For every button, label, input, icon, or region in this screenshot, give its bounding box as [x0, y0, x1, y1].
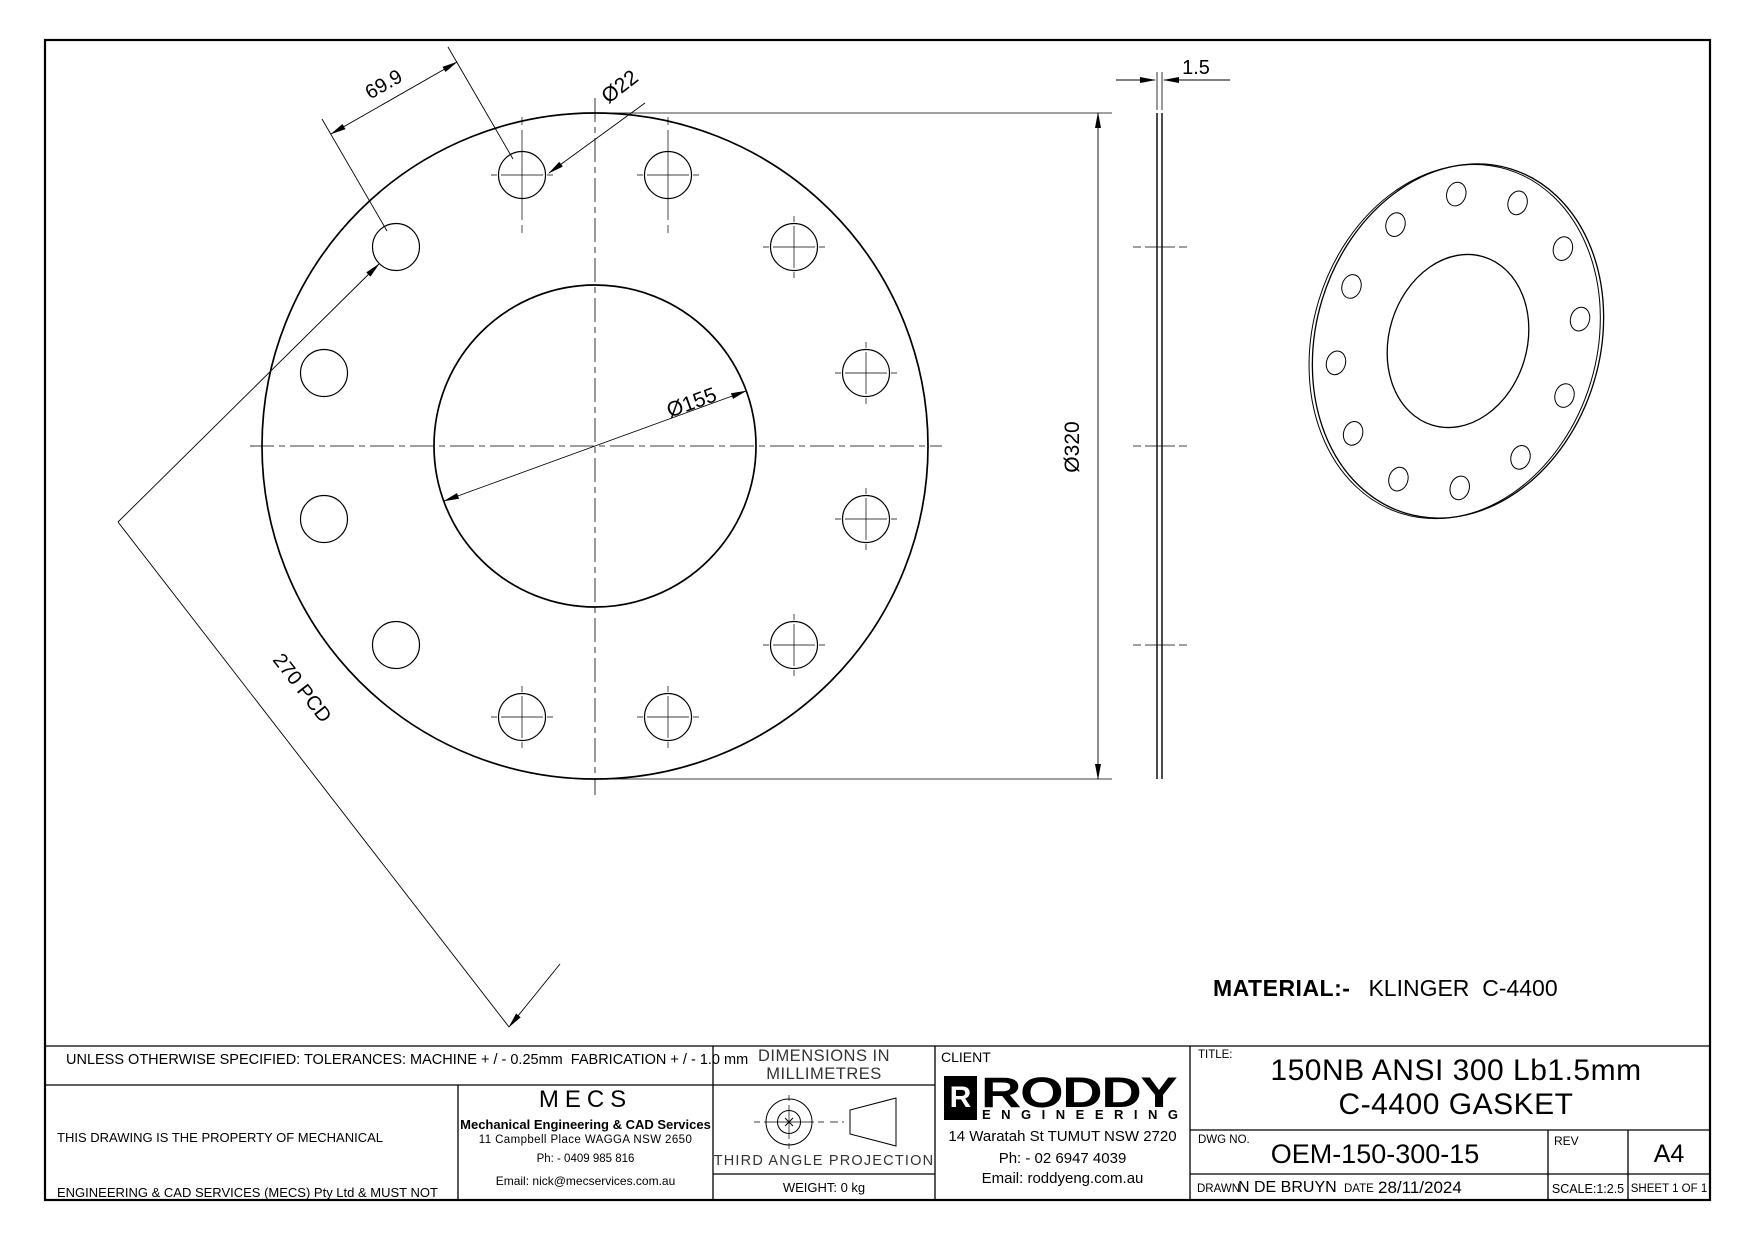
mecs-name: Mechanical Engineering & CAD Services — [458, 1117, 713, 1132]
client-phone: Ph: - 02 6947 4039 — [935, 1150, 1190, 1167]
front-view — [250, 98, 942, 795]
client-logo-sub: ENGINEERING — [982, 1108, 1189, 1121]
client-label: CLIENT — [941, 1049, 991, 1065]
hole-centermarks — [491, 117, 897, 748]
mecs-logo: MECS — [458, 1086, 713, 1114]
dwg-no-value: OEM-150-300-15 — [1202, 1139, 1548, 1170]
dim-bore-diameter: Ø155 — [664, 383, 720, 422]
third-angle-projection-icon — [754, 1095, 896, 1149]
drawing-title-line2: C-4400 GASKET — [1202, 1088, 1710, 1122]
rev-label: REV — [1554, 1134, 1579, 1148]
client-address: 14 Waratah St TUMUT NSW 2720 — [935, 1128, 1190, 1145]
dimension-69.9: 69.9 — [322, 47, 513, 231]
dim-thickness: 1.5 — [1182, 57, 1210, 79]
date-label: DATE — [1344, 1183, 1374, 1195]
drawn-label: DRAWN — [1197, 1183, 1240, 1195]
property-note-line: THIS DRAWING IS THE PROPERTY OF MECHANIC… — [57, 1129, 443, 1147]
client-email: Email: roddyeng.com.au — [935, 1170, 1190, 1187]
projection-label: THIRD ANGLE PROJECTION — [713, 1153, 935, 1169]
dim-hole-spacing: 69.9 — [362, 66, 407, 105]
units-note-line1: DIMENSIONS IN — [713, 1047, 935, 1066]
weight-label: WEIGHT: 0 kg — [713, 1180, 935, 1195]
date-value: 28/11/2024 — [1378, 1178, 1462, 1198]
material-value: KLINGER C-4400 — [1368, 975, 1557, 1002]
property-note-line: ENGINEERING & CAD SERVICES (MECS) Pty Lt… — [57, 1184, 443, 1202]
drawing-title-line1: 150NB ANSI 300 Lb1.5mm — [1202, 1054, 1710, 1088]
mecs-address: 11 Campbell Place WAGGA NSW 2650 — [458, 1134, 713, 1146]
drawing-border — [45, 40, 1710, 1200]
dim-outer-diameter: Ø320 — [1061, 421, 1084, 472]
paper-size: A4 — [1628, 1140, 1710, 1169]
dim-pcd: 270 PCD — [268, 650, 335, 727]
material-label: MATERIAL:- — [1213, 975, 1350, 1002]
mecs-phone: Ph: - 0409 985 816 — [458, 1153, 713, 1165]
dimension-pcd: 270 PCD — [118, 264, 560, 1027]
units-note-line2: MILLIMETRES — [713, 1065, 935, 1084]
tolerance-note: UNLESS OTHERWISE SPECIFIED: TOLERANCES: … — [66, 1052, 748, 1068]
dimension-thickness: 1.5 — [1116, 57, 1230, 110]
dimension-hole-dia: Ø22 — [549, 66, 645, 173]
drawn-by: N DE BRUYN — [1238, 1179, 1337, 1197]
scale-value: SCALE:1:2.5 — [1548, 1182, 1628, 1196]
iso-bolt-holes — [1289, 149, 1627, 532]
property-note: THIS DRAWING IS THE PROPERTY OF MECHANIC… — [57, 1092, 443, 1240]
material-note: MATERIAL:- KLINGER C-4400 — [1213, 975, 1558, 1002]
client-logo-r-icon: R — [944, 1076, 977, 1120]
mecs-email: Email: nick@mecservices.com.au — [458, 1174, 713, 1188]
dim-bolt-hole-diameter: Ø22 — [597, 66, 642, 109]
sheet-value: SHEET 1 OF 1 — [1628, 1183, 1710, 1195]
side-view — [1133, 113, 1187, 779]
isometric-view — [1266, 126, 1646, 556]
drawing-sheet: 69.9 Ø22 Ø155 Ø320 270 PCD 1.5 — [0, 0, 1753, 1240]
